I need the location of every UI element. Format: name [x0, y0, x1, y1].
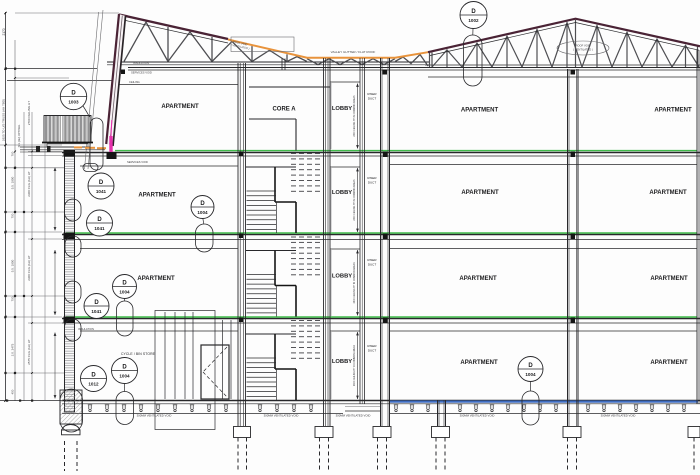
svg-text:SERVICES VOID: SERVICES VOID: [131, 70, 152, 74]
svg-text:D: D: [91, 372, 96, 378]
svg-text:APARTMENT: APARTMENT: [461, 108, 499, 114]
svg-text:APARTMENT: APARTMENT: [459, 276, 497, 282]
svg-text:( VENTILATED ): ( VENTILATED ): [573, 48, 593, 52]
svg-text:2400 CEILING HT IN COMMON AREA: 2400 CEILING HT IN COMMON AREAS: [353, 344, 356, 386]
svg-text:1004: 1004: [119, 289, 130, 294]
svg-text:2.0. 2475: 2.0. 2475: [11, 343, 15, 356]
svg-text:CEILING: CEILING: [129, 80, 140, 84]
svg-text:INSULATION: INSULATION: [133, 61, 149, 65]
svg-text:300MM VENTILATED VOID: 300MM VENTILATED VOID: [336, 413, 371, 417]
svg-text:APARTMENT: APARTMENT: [137, 276, 175, 282]
svg-text:300MM VENTILATED VOID: 300MM VENTILATED VOID: [137, 413, 172, 417]
svg-text:5.5. 1900: 5.5. 1900: [11, 176, 15, 189]
svg-text:DUCT: DUCT: [368, 263, 376, 267]
svg-text:1004: 1004: [197, 210, 208, 215]
svg-text:1003: 1003: [68, 99, 79, 104]
svg-text:750: 750: [11, 213, 15, 218]
svg-text:RISER: RISER: [367, 176, 377, 180]
svg-text:D: D: [200, 201, 205, 207]
svg-text:450: 450: [11, 389, 15, 394]
svg-text:CYCLE / BIN STORE: CYCLE / BIN STORE: [121, 352, 156, 356]
svg-text:5.5. 1900: 5.5. 1900: [11, 259, 15, 272]
svg-text:D: D: [97, 217, 102, 223]
svg-text:1041: 1041: [96, 189, 107, 194]
svg-text:DUCT: DUCT: [368, 181, 376, 185]
svg-text:SERVICES VOID: SERVICES VOID: [127, 160, 148, 164]
svg-text:APARTMENT: APARTMENT: [650, 360, 688, 366]
svg-text:RISER: RISER: [367, 344, 377, 348]
svg-text:1004: 1004: [119, 373, 130, 378]
svg-text:1002: 1002: [468, 18, 479, 23]
svg-text:2700 CEILING HT: 2700 CEILING HT: [27, 101, 31, 126]
svg-text:700: 700: [11, 151, 15, 156]
svg-text:LOBBY: LOBBY: [332, 359, 352, 365]
svg-text:1012: 1012: [88, 381, 99, 386]
svg-text:1041: 1041: [94, 226, 105, 231]
svg-text:APARTMENT: APARTMENT: [461, 190, 499, 196]
svg-text:RISER: RISER: [367, 258, 377, 262]
svg-text:300MM VENTILATED VOID: 300MM VENTILATED VOID: [264, 413, 299, 417]
svg-text:CORE A: CORE A: [272, 107, 296, 113]
svg-text:300MM VENTILATED VOID: 300MM VENTILATED VOID: [460, 413, 495, 417]
svg-text:SFL (AH) OPTIMAL: SFL (AH) OPTIMAL: [17, 124, 21, 147]
svg-text:D: D: [528, 363, 533, 369]
svg-text:2925 TO U/S TRUSS (AH TBD): 2925 TO U/S TRUSS (AH TBD): [2, 99, 6, 141]
svg-text:DUCT: DUCT: [368, 349, 376, 353]
svg-text:2400 CEILING HT IN COMMON AREA: 2400 CEILING HT IN COMMON AREAS: [353, 262, 356, 304]
svg-text:750: 750: [11, 296, 15, 301]
svg-text:D: D: [94, 300, 99, 306]
svg-text:APARTMENT: APARTMENT: [138, 193, 176, 199]
svg-text:D: D: [122, 280, 127, 286]
svg-text:INSULATION: INSULATION: [78, 327, 94, 331]
svg-text:APARTMENT: APARTMENT: [654, 108, 692, 114]
svg-text:2300 CLG (AH) HT: 2300 CLG (AH) HT: [27, 255, 31, 281]
svg-text:APARTMENT: APARTMENT: [649, 190, 687, 196]
svg-text:ROOF VOID: ROOF VOID: [575, 44, 590, 48]
svg-text:2400 CEILING HT IN COMMON AREA: 2400 CEILING HT IN COMMON AREAS: [353, 179, 356, 221]
svg-text:2170: 2170: [2, 28, 6, 35]
svg-text:1004: 1004: [525, 372, 536, 377]
svg-text:LOBBY: LOBBY: [332, 274, 352, 280]
svg-text:D: D: [122, 364, 127, 370]
svg-text:LOBBY: LOBBY: [332, 190, 352, 196]
svg-text:VALLEY GUTTER / FLAT ROOF: VALLEY GUTTER / FLAT ROOF: [331, 50, 376, 54]
svg-text:2300 CLG (AH) HT: 2300 CLG (AH) HT: [27, 171, 31, 197]
svg-text:RISER: RISER: [367, 92, 377, 96]
svg-text:APARTMENT: APARTMENT: [650, 276, 688, 282]
svg-text:APARTMENT: APARTMENT: [460, 360, 498, 366]
svg-text:APARTMENT: APARTMENT: [161, 104, 199, 110]
svg-text:D: D: [99, 180, 104, 186]
svg-text:2400 CEILING HT IN COMMON AREA: 2400 CEILING HT IN COMMON AREAS: [353, 95, 356, 137]
svg-text:LOBBY: LOBBY: [332, 106, 352, 112]
svg-text:1041: 1041: [91, 309, 102, 314]
svg-text:2575 CLG (AH) HT: 2575 CLG (AH) HT: [27, 339, 31, 365]
svg-text:D: D: [471, 9, 476, 15]
svg-text:DUCT: DUCT: [368, 97, 376, 101]
svg-text:D: D: [71, 90, 76, 96]
svg-text:300MM VENTILATED VOID: 300MM VENTILATED VOID: [601, 413, 636, 417]
